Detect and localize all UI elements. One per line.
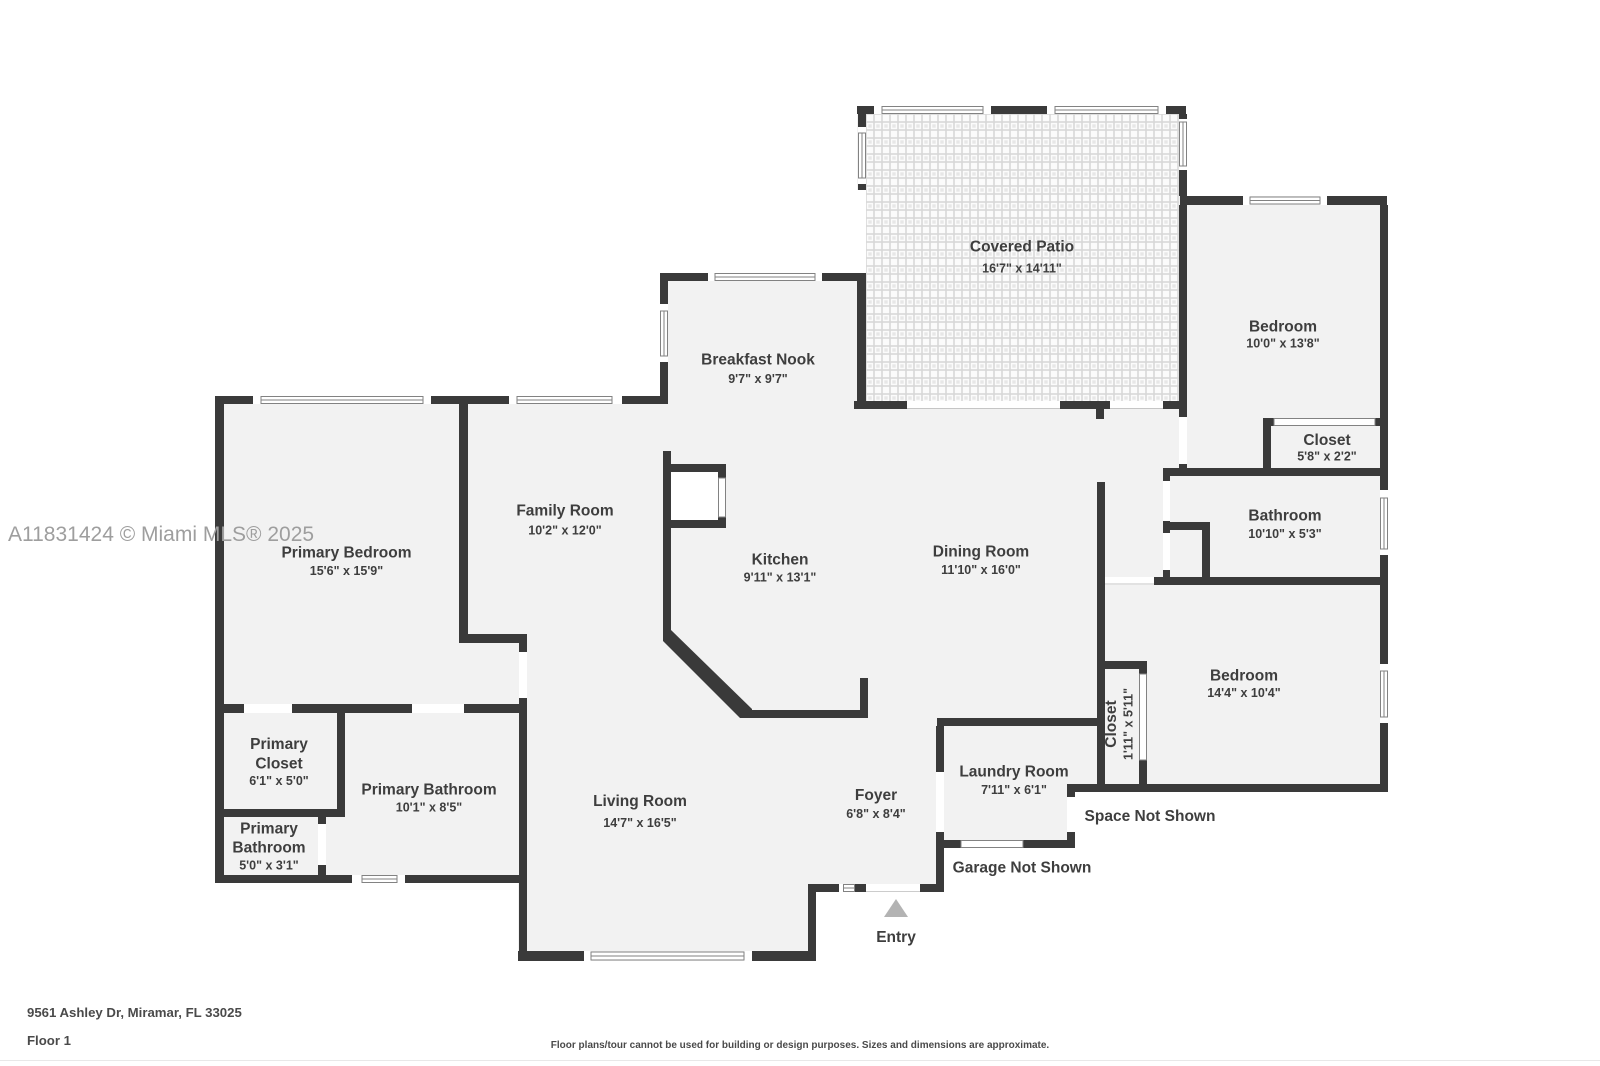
svg-text:Bathroom: Bathroom xyxy=(1248,508,1321,525)
svg-text:5'0" x 3'1": 5'0" x 3'1" xyxy=(239,859,299,873)
svg-text:Bathroom: Bathroom xyxy=(232,840,305,857)
svg-text:14'7" x 16'5": 14'7" x 16'5" xyxy=(603,816,676,830)
svg-text:Closet: Closet xyxy=(255,756,302,773)
svg-text:Primary: Primary xyxy=(250,736,308,753)
svg-text:Garage Not Shown: Garage Not Shown xyxy=(953,860,1092,877)
svg-text:Primary: Primary xyxy=(240,821,298,838)
svg-text:Floor 1: Floor 1 xyxy=(27,1033,71,1048)
svg-text:5'8" x 2'2": 5'8" x 2'2" xyxy=(1297,450,1357,464)
svg-text:16'7" x 14'11": 16'7" x 14'11" xyxy=(982,262,1062,276)
svg-text:10'2" x 12'0": 10'2" x 12'0" xyxy=(528,524,601,538)
svg-text:Dining Room: Dining Room xyxy=(933,544,1029,561)
svg-text:Bedroom: Bedroom xyxy=(1249,319,1317,336)
svg-text:Breakfast Nook: Breakfast Nook xyxy=(701,352,815,369)
svg-text:10'10" x 5'3": 10'10" x 5'3" xyxy=(1248,527,1321,541)
svg-text:7'11" x 6'1": 7'11" x 6'1" xyxy=(981,783,1047,797)
svg-text:A11831424 © Miami MLS® 2025: A11831424 © Miami MLS® 2025 xyxy=(8,523,314,546)
svg-text:Laundry Room: Laundry Room xyxy=(959,764,1068,781)
svg-text:6'8" x 8'4": 6'8" x 8'4" xyxy=(846,807,906,821)
svg-text:6'1" x 5'0": 6'1" x 5'0" xyxy=(249,774,309,788)
svg-text:Primary Bedroom: Primary Bedroom xyxy=(281,545,411,562)
svg-text:Primary Bathroom: Primary Bathroom xyxy=(361,782,496,799)
svg-text:10'0" x 13'8": 10'0" x 13'8" xyxy=(1246,337,1319,351)
svg-text:Kitchen: Kitchen xyxy=(752,552,809,569)
svg-text:Closet: Closet xyxy=(1303,432,1350,449)
svg-text:Space Not Shown: Space Not Shown xyxy=(1085,808,1216,825)
svg-text:Covered Patio: Covered Patio xyxy=(970,239,1074,256)
svg-text:Entry: Entry xyxy=(876,929,916,946)
svg-text:Living Room: Living Room xyxy=(593,793,687,810)
svg-text:9561 Ashley Dr, Miramar, FL 33: 9561 Ashley Dr, Miramar, FL 33025 xyxy=(27,1005,242,1020)
svg-text:9'7" x 9'7": 9'7" x 9'7" xyxy=(728,372,788,386)
svg-text:14'4" x 10'4": 14'4" x 10'4" xyxy=(1207,686,1280,700)
svg-text:11'10" x 16'0": 11'10" x 16'0" xyxy=(941,563,1021,577)
svg-text:1'11" x 5'11": 1'11" x 5'11" xyxy=(1121,688,1135,760)
svg-text:Foyer: Foyer xyxy=(855,787,897,804)
svg-text:Family Room: Family Room xyxy=(516,503,613,520)
svg-text:15'6" x 15'9": 15'6" x 15'9" xyxy=(310,564,383,578)
svg-text:9'11" x 13'1": 9'11" x 13'1" xyxy=(744,571,817,585)
svg-text:10'1" x 8'5": 10'1" x 8'5" xyxy=(396,801,463,815)
svg-text:Bedroom: Bedroom xyxy=(1210,668,1278,685)
svg-text:Floor plans/tour cannot be use: Floor plans/tour cannot be used for buil… xyxy=(551,1040,1050,1051)
svg-text:Closet: Closet xyxy=(1103,700,1120,747)
